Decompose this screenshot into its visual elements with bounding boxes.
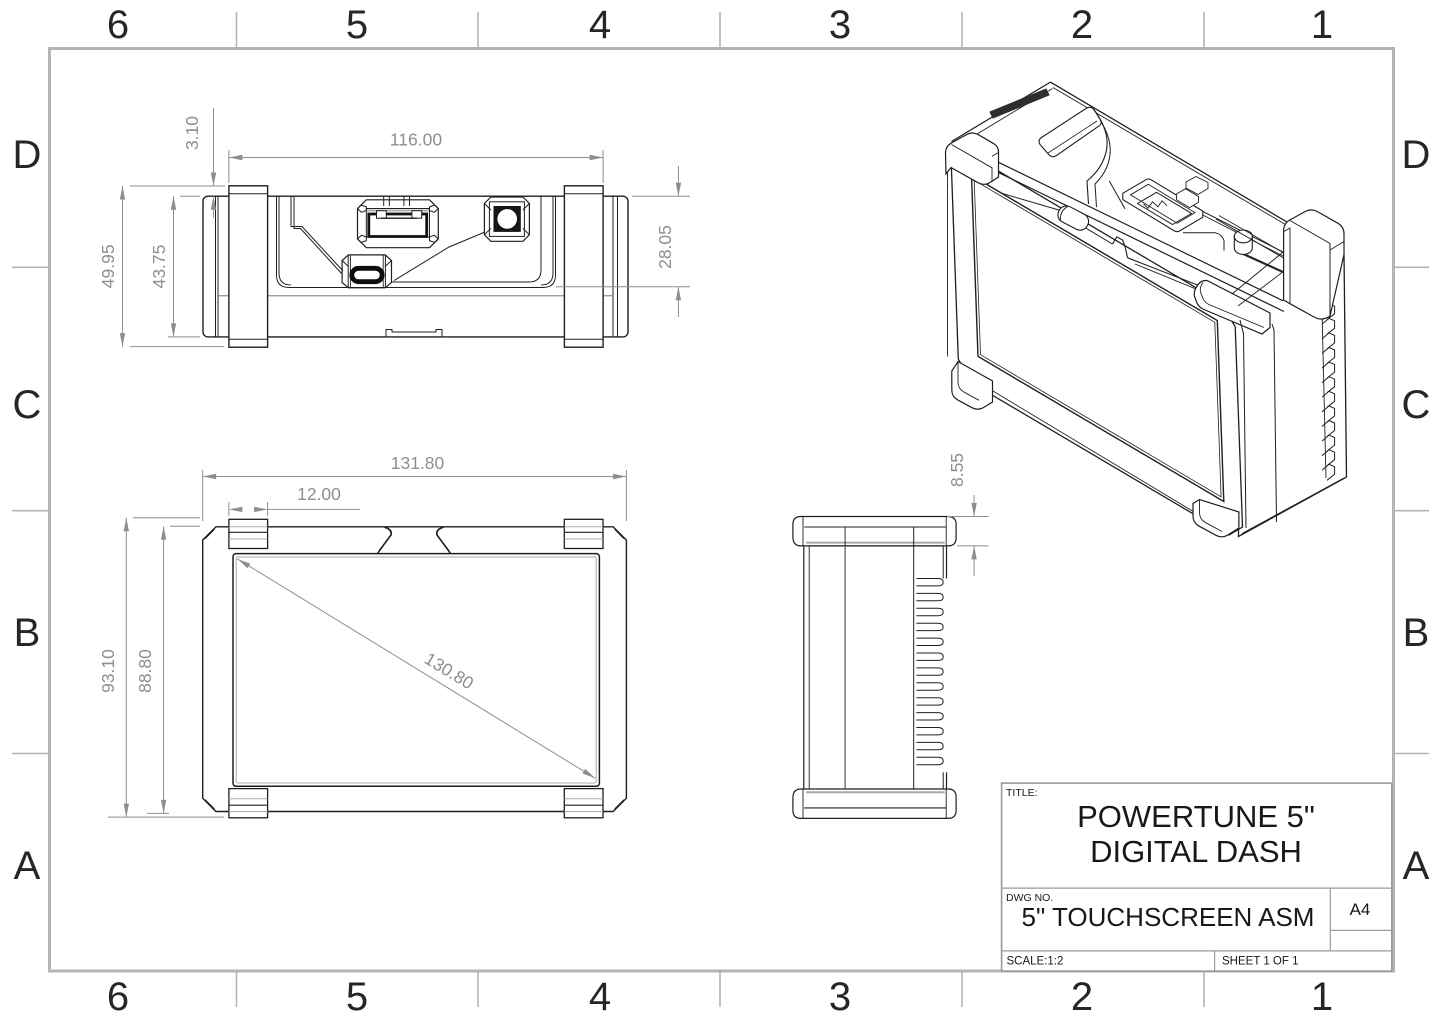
svg-text:B: B [1403,611,1430,655]
svg-text:8.55: 8.55 [947,453,967,487]
svg-text:D: D [13,133,42,177]
svg-text:131.80: 131.80 [391,453,445,473]
svg-text:88.80: 88.80 [135,649,155,693]
svg-text:C: C [1402,383,1431,427]
svg-text:2: 2 [1071,975,1093,1019]
svg-text:116.00: 116.00 [390,130,442,150]
svg-text:4: 4 [589,975,611,1019]
svg-text:2: 2 [1071,3,1093,47]
svg-text:4: 4 [589,3,611,47]
svg-text:5: 5 [346,975,368,1019]
svg-text:C: C [13,383,42,427]
svg-text:POWERTUNE 5": POWERTUNE 5" [1077,799,1315,834]
svg-text:3: 3 [829,975,851,1019]
svg-text:TITLE:: TITLE: [1006,787,1038,799]
svg-text:28.05: 28.05 [655,225,675,269]
svg-text:3.10: 3.10 [182,116,202,150]
svg-text:93.10: 93.10 [98,649,118,693]
svg-text:43.75: 43.75 [149,245,169,289]
svg-text:12.00: 12.00 [297,484,341,504]
svg-text:5: 5 [346,3,368,47]
svg-text:SHEET 1 OF 1: SHEET 1 OF 1 [1222,956,1298,968]
svg-text:6: 6 [107,3,129,47]
svg-text:DIGITAL DASH: DIGITAL DASH [1090,834,1302,869]
svg-text:B: B [14,611,41,655]
svg-text:A: A [1403,844,1430,888]
svg-text:A: A [14,844,41,888]
svg-text:1: 1 [1311,975,1333,1019]
svg-text:49.95: 49.95 [98,244,118,288]
svg-text:SCALE:1:2: SCALE:1:2 [1007,956,1064,968]
svg-text:A4: A4 [1350,900,1371,919]
svg-text:3: 3 [829,3,851,47]
svg-text:5" TOUCHSCREEN ASM: 5" TOUCHSCREEN ASM [1022,902,1315,932]
svg-text:D: D [1402,133,1431,177]
svg-text:6: 6 [107,975,129,1019]
svg-text:1: 1 [1311,3,1333,47]
